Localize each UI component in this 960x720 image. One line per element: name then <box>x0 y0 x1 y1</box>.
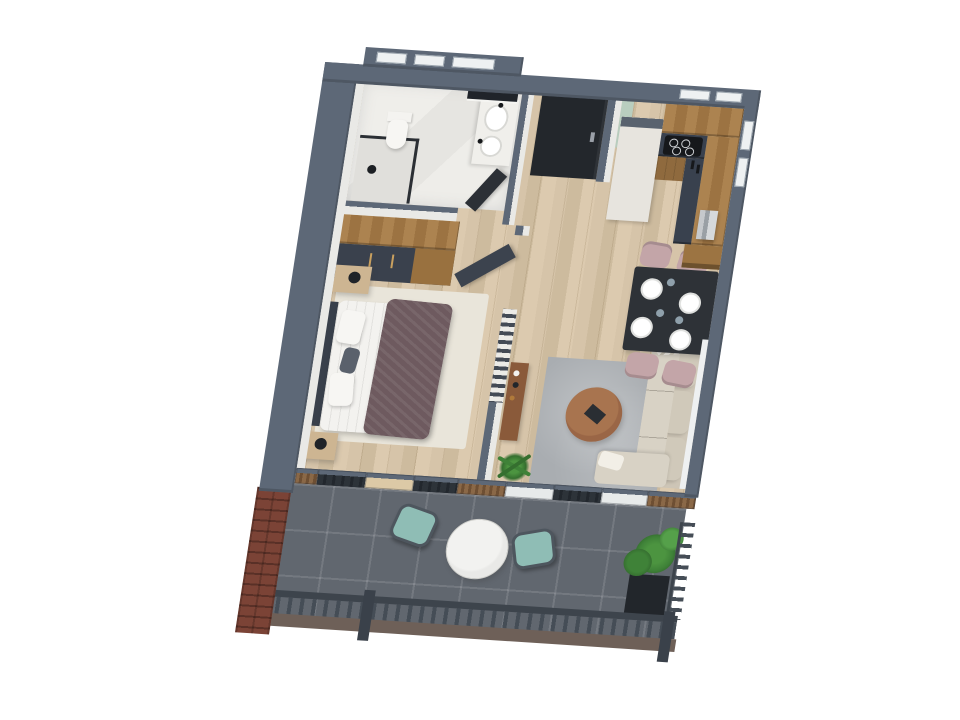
terrace-chair <box>511 527 557 571</box>
terrace-wall-glass-pane <box>600 488 648 507</box>
partition-stub <box>515 225 531 236</box>
terrace-wall-wood-panel <box>294 468 318 485</box>
window <box>715 91 743 102</box>
terrace-wall-plywood-door <box>364 472 414 491</box>
terrace-wall-glass-pane <box>504 481 554 500</box>
terrace-wall-dark-panel <box>412 475 458 493</box>
dining-chair <box>623 351 660 380</box>
wardrobe-wood-door <box>410 248 455 286</box>
window <box>679 89 711 101</box>
window <box>414 54 446 67</box>
bed-pillow <box>328 373 355 406</box>
floorplan-scene <box>0 0 960 720</box>
terrace-wall-wood-panel <box>456 478 506 497</box>
base-cabinet <box>655 156 687 181</box>
window <box>376 52 408 65</box>
front-door <box>530 86 610 180</box>
shower <box>350 135 419 204</box>
terrace-wall-dark-panel <box>552 485 602 504</box>
wood-shelf <box>681 244 723 270</box>
planter-box <box>624 574 670 617</box>
terrace-wall-dark-panel <box>316 469 366 488</box>
